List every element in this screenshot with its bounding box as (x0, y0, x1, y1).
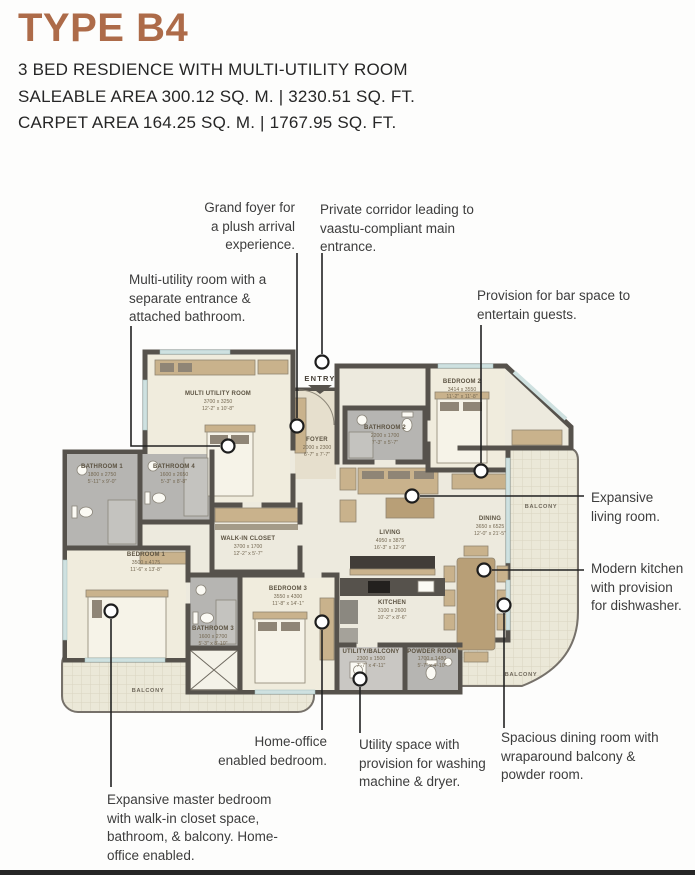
svg-text:7'-3" x 5'-7": 7'-3" x 5'-7" (372, 440, 398, 446)
svg-text:5'-3" x 8'-10": 5'-3" x 8'-10" (198, 641, 227, 647)
svg-text:WALK-IN CLOSET: WALK-IN CLOSET (221, 536, 276, 542)
svg-text:BEDROOM 2: BEDROOM 2 (443, 379, 482, 385)
callout-grand-foyer: Grand foyer for a plush arrival experien… (195, 199, 295, 255)
callout-master-bedroom: Expansive master bedroom with walk-in cl… (107, 791, 285, 866)
svg-text:7'-7" x 4'-11": 7'-7" x 4'-11" (357, 663, 386, 669)
svg-text:11'-2" x 11'-8": 11'-2" x 11'-8" (446, 394, 477, 400)
callout-expansive-living: Expansive living room. (591, 489, 676, 526)
svg-text:5'-7" x 4'-10": 5'-7" x 4'-10" (417, 663, 446, 669)
callout-utility-space: Utility space with provision for washing… (359, 736, 501, 792)
svg-text:BATHROOM 2: BATHROOM 2 (364, 425, 406, 431)
svg-text:1800 x 2750: 1800 x 2750 (88, 472, 117, 478)
svg-text:2000 x 2300: 2000 x 2300 (303, 445, 332, 451)
svg-text:BATHROOM 3: BATHROOM 3 (192, 626, 234, 632)
balcony-label-right: BALCONY (525, 504, 558, 510)
room-label-foyer: FOYER 2000 x 2300 6'-7" x 7'-7" (303, 437, 332, 458)
svg-text:2300 x 1500: 2300 x 1500 (357, 656, 386, 662)
svg-text:10'-2" x 8'-6": 10'-2" x 8'-6" (377, 615, 406, 621)
svg-text:3700 x 1700: 3700 x 1700 (234, 544, 263, 550)
callout-multi-utility: Multi-utility room with a separate entra… (129, 271, 277, 327)
svg-text:BATHROOM 4: BATHROOM 4 (153, 464, 195, 470)
entry-label: ENTRY (304, 374, 335, 383)
svg-text:DINING: DINING (479, 516, 501, 522)
svg-text:4950 x 3875: 4950 x 3875 (376, 538, 405, 544)
room-label-bedroom3: BEDROOM 3 3550 x 4300 11'-8" x 14'-1" (269, 586, 308, 607)
floorplan-page: TYPE B4 3 BED RESDIENCE WITH MULTI-UTILI… (0, 0, 695, 875)
svg-text:FOYER: FOYER (306, 437, 328, 443)
svg-text:POWDER ROOM: POWDER ROOM (407, 649, 457, 655)
balcony-label-bottom-left: BALCONY (132, 688, 165, 694)
svg-text:12'-0" x 21'-5": 12'-0" x 21'-5" (474, 531, 506, 537)
callout-modern-kitchen: Modern kitchen with provision for dishwa… (591, 560, 691, 616)
svg-text:UTILITY/BALCONY: UTILITY/BALCONY (343, 649, 400, 655)
svg-text:1700 x 1480: 1700 x 1480 (418, 656, 447, 662)
svg-text:11'-8" x 14'-1": 11'-8" x 14'-1" (272, 601, 304, 607)
svg-text:6'-7" x 7'-7": 6'-7" x 7'-7" (304, 452, 330, 458)
svg-text:3550 x 4300: 3550 x 4300 (274, 594, 303, 600)
callout-spacious-dining: Spacious dining room with wraparound bal… (501, 729, 671, 785)
room-label-bedroom2: BEDROOM 2 3414 x 3550 11'-2" x 11'-8" (443, 379, 482, 400)
svg-text:3700 x 3250: 3700 x 3250 (204, 399, 233, 405)
bottom-divider-bar (0, 870, 695, 875)
svg-text:5'-3" x 8'-8": 5'-3" x 8'-8" (161, 479, 187, 485)
svg-text:BEDROOM 3: BEDROOM 3 (269, 586, 308, 592)
svg-text:2200 x 1700: 2200 x 1700 (371, 433, 400, 439)
callout-home-office: Home-office enabled bedroom. (213, 733, 327, 770)
room-label-bedroom1: BEDROOM 1 3500 x 4175 11'-6" x 13'-8" (127, 552, 166, 573)
svg-text:LIVING: LIVING (379, 530, 400, 536)
svg-text:11'-6" x 13'-8": 11'-6" x 13'-8" (130, 567, 162, 573)
svg-text:3100 x 2600: 3100 x 2600 (378, 608, 407, 614)
svg-text:1600 x 2650: 1600 x 2650 (160, 472, 189, 478)
svg-text:BEDROOM 1: BEDROOM 1 (127, 552, 166, 558)
room-label-kitchen: KITCHEN 3100 x 2600 10'-2" x 8'-6" (377, 600, 406, 621)
svg-text:12'-2" x 10'-8": 12'-2" x 10'-8" (202, 406, 234, 412)
svg-text:5'-11" x 9'-0": 5'-11" x 9'-0" (88, 479, 117, 485)
svg-text:3650 x 6525: 3650 x 6525 (476, 524, 505, 530)
svg-text:3500 x 4175: 3500 x 4175 (132, 560, 161, 566)
svg-text:MULTI UTILITY ROOM: MULTI UTILITY ROOM (185, 391, 251, 397)
svg-text:BATHROOM 1: BATHROOM 1 (81, 464, 123, 470)
callout-private-corridor: Private corridor leading to vaastu-compl… (320, 201, 475, 257)
callout-bar-space: Provision for bar space to entertain gue… (477, 287, 635, 324)
svg-text:12'-2" x 5'-7": 12'-2" x 5'-7" (233, 551, 262, 557)
svg-text:16'-3" x 12'-9": 16'-3" x 12'-9" (374, 545, 406, 551)
svg-text:3414 x 3550: 3414 x 3550 (448, 387, 477, 393)
svg-text:KITCHEN: KITCHEN (378, 600, 406, 606)
balcony-label-bottom-right: BALCONY (505, 672, 538, 678)
svg-text:1600 x 2700: 1600 x 2700 (199, 634, 228, 640)
